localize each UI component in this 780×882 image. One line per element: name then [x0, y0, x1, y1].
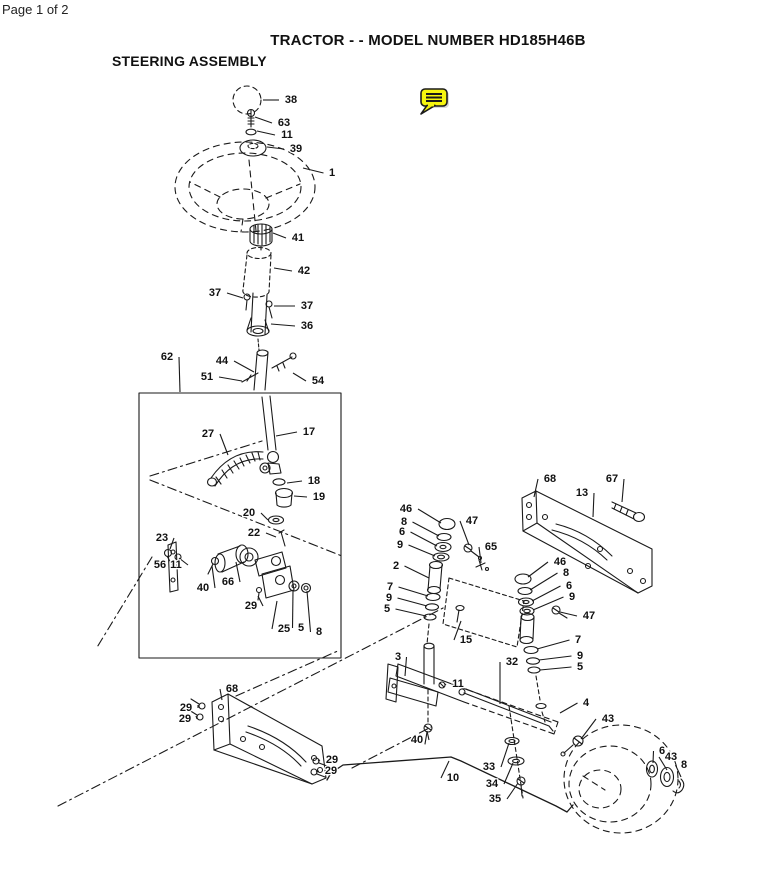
callout-leader-line [257, 131, 275, 135]
part-number-label: 13 [576, 487, 588, 499]
part-callout-63: 63 [255, 117, 290, 129]
callout-leader-line [258, 596, 263, 606]
callout-leader-line [532, 586, 561, 601]
part-callout-29: 29 [245, 596, 263, 612]
part-number-label: 39 [290, 143, 302, 155]
part-number-label: 8 [563, 567, 569, 579]
part-callout-2: 2 [393, 560, 429, 578]
front-wheel-art [561, 725, 684, 833]
part-number-label: 66 [222, 576, 234, 588]
part-callout-68: 68 [534, 473, 556, 497]
part-number-label: 15 [460, 634, 472, 646]
part-callout-8: 8 [401, 516, 439, 536]
part-number-label: 37 [301, 300, 313, 312]
callout-leader-line [219, 377, 242, 381]
part-callout-62: 62 [161, 351, 180, 392]
callout-leader-line [272, 601, 277, 629]
steering-wheel-art [175, 142, 315, 232]
part-number-label: 47 [583, 610, 595, 622]
callout-leader-line [274, 268, 292, 271]
part-number-label: 51 [201, 371, 213, 383]
part-callout-7: 7 [387, 581, 428, 596]
part-number-label: 62 [161, 351, 173, 363]
callout-leader-line [411, 532, 438, 546]
part-callout-36: 36 [271, 320, 313, 332]
part-callout-67: 67 [606, 473, 624, 502]
callout-leader-line [539, 656, 572, 660]
callout-leader-line [294, 496, 307, 497]
callout-leader-line [255, 117, 272, 123]
part-number-label: 63 [278, 117, 290, 129]
part-number-label: 9 [569, 591, 575, 603]
part-number-label: 38 [285, 94, 297, 106]
axle-support-bracket-right-art [522, 491, 652, 593]
part-callout-39: 39 [267, 143, 302, 155]
callout-leader-line [445, 684, 446, 685]
part-callout-7: 7 [537, 634, 581, 649]
part-number-label: 29 [179, 713, 191, 725]
part-number-label: 41 [292, 232, 304, 244]
part-callout-37: 37 [209, 287, 243, 299]
part-number-label: 32 [506, 656, 518, 668]
axle-and-linkage-art [327, 643, 573, 812]
part-callout-6: 6 [532, 580, 572, 601]
part-callout-5: 5 [293, 591, 305, 634]
callout-leader-line [398, 598, 428, 606]
steering-cap-art [233, 86, 266, 156]
part-callout-47: 47 [460, 515, 478, 545]
callout-leader-line [409, 545, 436, 556]
parts-diagram: 3863113914142373736624451541727181920222… [0, 0, 780, 882]
part-number-label: 27 [202, 428, 214, 440]
part-callout-1: 1 [303, 167, 335, 179]
callout-leader-line [405, 566, 430, 578]
part-callout-10: 10 [441, 761, 459, 784]
construction-lines-art [58, 441, 445, 806]
callout-leader-line [271, 324, 295, 326]
part-callout-23: 23 [156, 532, 174, 549]
part-callout-42: 42 [274, 265, 310, 277]
part-number-label: 8 [316, 626, 322, 638]
callout-leader-line [227, 293, 243, 298]
callout-leader-line [560, 703, 578, 713]
part-callout-47: 47 [560, 610, 595, 622]
part-number-label: 54 [312, 375, 325, 387]
part-callout-29: 29 [179, 713, 197, 725]
part-number-label: 67 [606, 473, 618, 485]
part-callout-18: 18 [287, 475, 320, 487]
part-callout-65: 65 [479, 541, 497, 563]
callout-leader-line [399, 587, 429, 596]
callout-leader-line [530, 573, 558, 590]
annotation-note-icon[interactable] [416, 86, 454, 120]
callout-leader-line [540, 667, 572, 670]
callout-leader-line [537, 640, 570, 649]
part-number-label: 43 [602, 713, 614, 725]
callout-leader-line [266, 533, 276, 537]
part-number-label: 29 [245, 600, 257, 612]
part-number-label: 68 [544, 473, 556, 485]
part-callout-6: 6 [653, 745, 665, 763]
part-number-label: 9 [397, 539, 403, 551]
part-callout-41: 41 [273, 232, 304, 244]
part-number-label: 4 [583, 697, 590, 709]
part-number-label: 5 [577, 661, 583, 673]
part-number-label: 1 [329, 167, 335, 179]
part-number-label: 35 [489, 793, 501, 805]
part-callout-20: 20 [243, 507, 268, 520]
callout-leader-line [293, 373, 306, 381]
callout-leader-line [234, 361, 254, 372]
part-number-label: 44 [216, 355, 229, 367]
part-number-label: 23 [156, 532, 168, 544]
part-number-label: 5 [384, 603, 390, 615]
callout-leader-line [212, 566, 215, 588]
callout-leader-line [179, 357, 180, 392]
part-number-label: 18 [308, 475, 320, 487]
note-tail [421, 105, 435, 114]
axle-support-bracket-left-art [189, 694, 327, 784]
part-callout-54: 54 [293, 373, 325, 387]
part-callout-68: 68 [220, 683, 238, 700]
part-number-label: 36 [301, 320, 313, 332]
part-number-label: 40 [411, 734, 423, 746]
part-callout-5: 5 [540, 661, 583, 673]
part-number-label: 17 [303, 426, 315, 438]
callout-leader-line [501, 743, 509, 767]
callout-leader-line [581, 719, 596, 739]
part-number-label: 5 [298, 622, 304, 634]
part-callout-19: 19 [294, 491, 325, 503]
part-number-label: 42 [298, 265, 310, 277]
part-number-label: 11 [281, 129, 293, 141]
callout-leader-line [622, 479, 624, 502]
callout-leader-line [220, 434, 228, 455]
part-number-label: 19 [313, 491, 325, 503]
part-callout-6: 6 [399, 526, 437, 546]
part-callout-15: 15 [454, 621, 472, 646]
part-callout-11: 11 [257, 129, 293, 141]
part-callout-11: 11 [445, 678, 464, 690]
part-callout-5: 5 [384, 603, 426, 616]
part-callout-32: 32 [500, 656, 518, 704]
spindle-left-art [424, 519, 524, 648]
part-callout-40: 40 [197, 566, 215, 594]
part-callout-17: 17 [276, 426, 315, 438]
part-number-label: 25 [278, 623, 290, 635]
part-number-label: 20 [243, 507, 255, 519]
callout-leader-line [593, 493, 594, 517]
part-number-label: 40 [197, 582, 209, 594]
callout-leader-line [307, 591, 311, 632]
part-number-label: 10 [447, 772, 459, 784]
callout-leader-line [405, 657, 407, 676]
part-callout-38: 38 [263, 94, 297, 106]
part-callout-22: 22 [248, 527, 276, 539]
part-number-label: 37 [209, 287, 221, 299]
part-number-label: 65 [485, 541, 497, 553]
part-callout-4: 4 [560, 697, 590, 713]
part-number-label: 8 [681, 759, 687, 771]
part-number-label: 2 [393, 560, 399, 572]
part-callout-27: 27 [202, 428, 228, 455]
callout-leader-line [504, 763, 513, 784]
callout-leader-line [413, 522, 440, 536]
part-number-label: 22 [248, 527, 260, 539]
part-number-label: 6 [399, 526, 405, 538]
steering-column-art [242, 224, 296, 390]
part-number-label: 29 [325, 765, 337, 777]
part-callout-46: 46 [528, 556, 566, 577]
callout-leader-line [287, 481, 302, 483]
callout-leader-line [293, 591, 294, 628]
part-number-label: 68 [226, 683, 238, 695]
part-number-label: 46 [400, 503, 412, 515]
part-callouts: 3863113914142373736624451541727181920222… [154, 94, 687, 805]
part-callout-8: 8 [307, 591, 322, 638]
callout-leader-line [653, 751, 654, 763]
callout-leader-line [418, 509, 441, 523]
document-page: Page 1 of 2 TRACTOR - - MODEL NUMBER HD1… [0, 0, 780, 882]
callout-leader-line [396, 609, 427, 616]
part-callout-33: 33 [483, 743, 509, 773]
callout-leader-line [303, 168, 324, 173]
part-number-label: 11 [170, 559, 182, 571]
part-callout-25: 25 [272, 601, 290, 635]
part-callout-37: 37 [274, 300, 313, 312]
part-number-label: 43 [665, 751, 677, 763]
part-number-label: 3 [395, 651, 401, 663]
part-number-label: 11 [452, 678, 464, 690]
part-callout-44: 44 [216, 355, 254, 372]
part-number-label: 7 [575, 634, 581, 646]
part-callout-11: 11 [170, 558, 188, 571]
callout-leader-line [273, 233, 286, 238]
callout-leader-line [276, 432, 297, 436]
part-number-label: 34 [486, 778, 499, 790]
callout-leader-line [261, 513, 268, 520]
part-callout-43: 43 [581, 713, 614, 739]
callout-leader-line [528, 562, 548, 577]
part-callout-51: 51 [201, 371, 242, 383]
part-number-label: 56 [154, 559, 166, 571]
part-number-label: 47 [466, 515, 478, 527]
part-number-label: 33 [483, 761, 495, 773]
